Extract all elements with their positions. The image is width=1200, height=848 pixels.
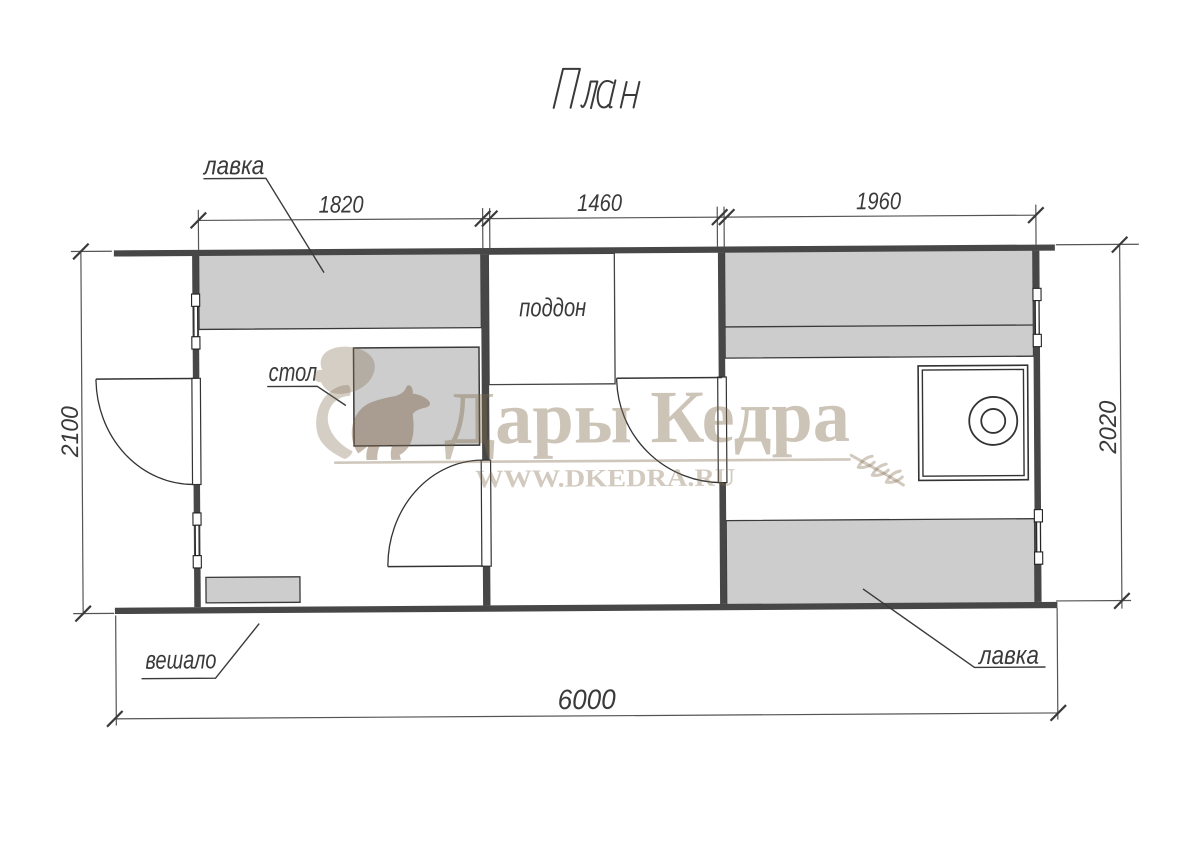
- svg-text:2020: 2020: [1095, 400, 1122, 455]
- svg-text:Дары Кедра: Дары Кедра: [444, 375, 851, 461]
- svg-text:1460: 1460: [577, 190, 623, 217]
- svg-text:поддон: поддон: [519, 292, 586, 322]
- svg-text:вешало: вешало: [145, 644, 216, 674]
- svg-text:лавка: лавка: [202, 150, 264, 180]
- svg-text:стол: стол: [269, 357, 318, 387]
- svg-text:2100: 2100: [57, 406, 84, 459]
- svg-text:WWW.DKEDRA.RU: WWW.DKEDRA.RU: [475, 465, 735, 494]
- svg-text:лавка: лавка: [977, 640, 1039, 670]
- svg-text:6000: 6000: [558, 684, 617, 715]
- svg-text:1960: 1960: [856, 188, 902, 215]
- svg-text:1820: 1820: [318, 191, 364, 218]
